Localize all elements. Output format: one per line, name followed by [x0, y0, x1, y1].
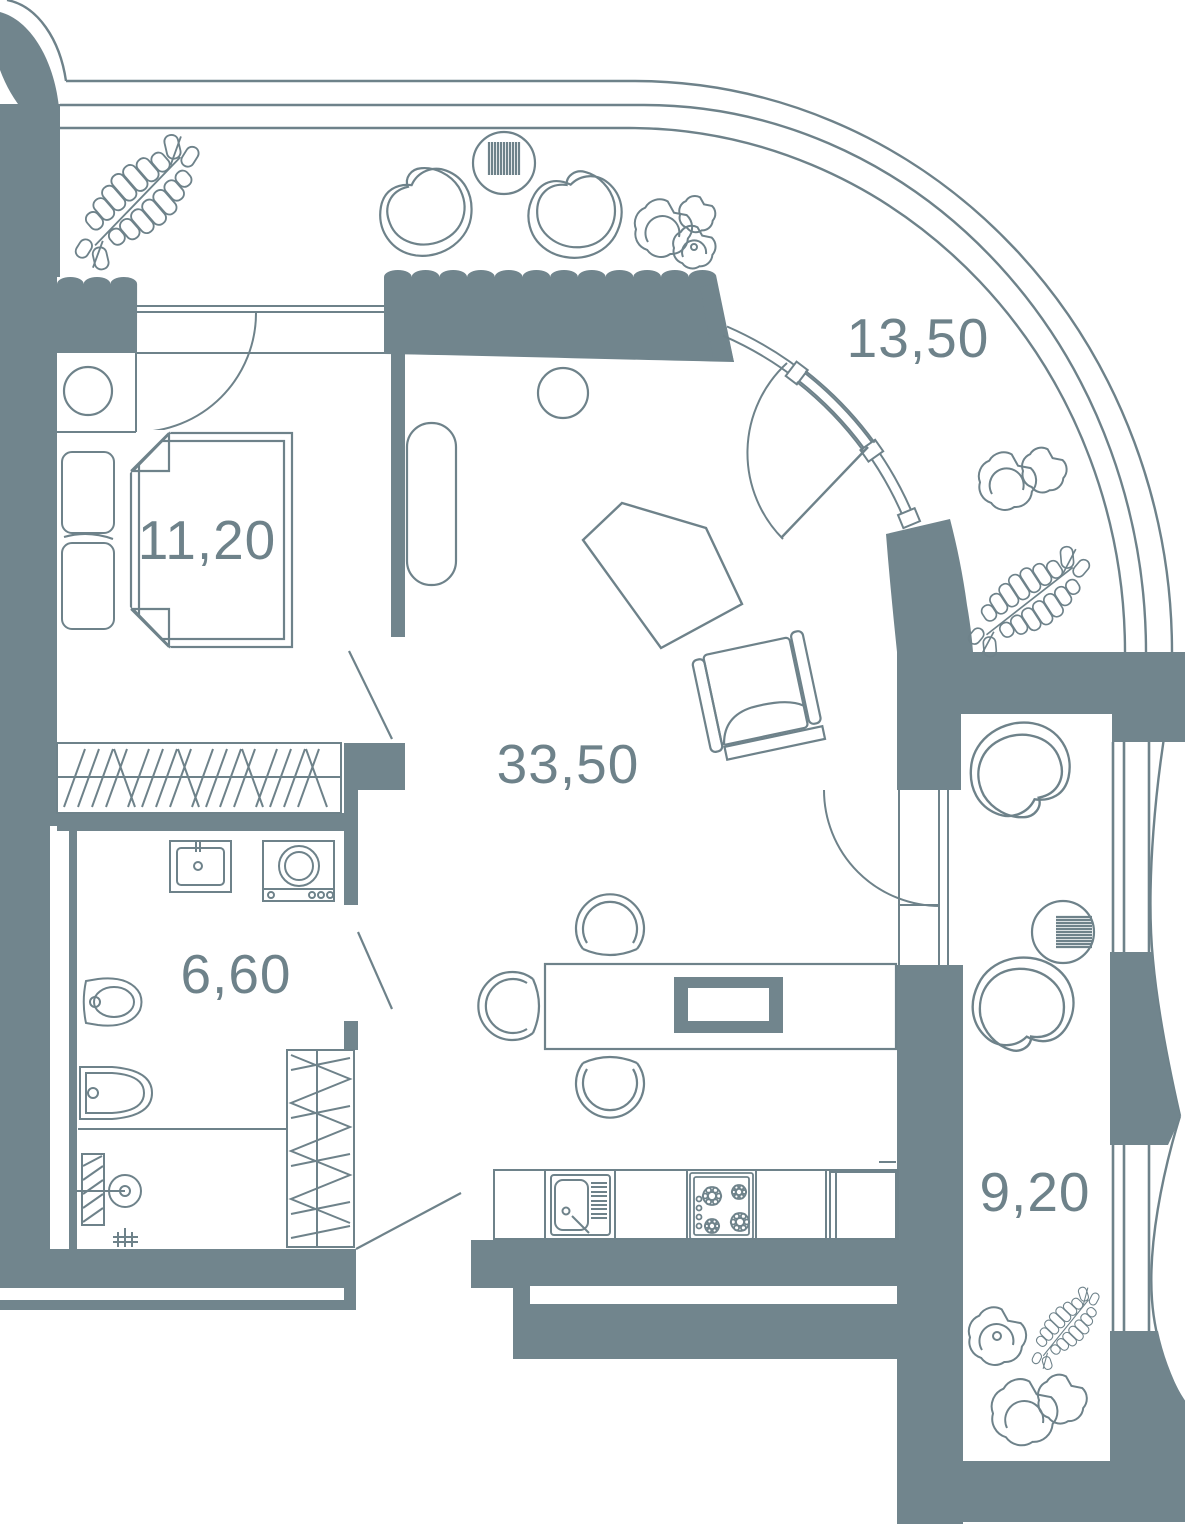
svg-text:33,50: 33,50 — [497, 733, 640, 795]
svg-text:9,20: 9,20 — [979, 1161, 1090, 1223]
svg-text:13,50: 13,50 — [847, 307, 990, 369]
svg-text:11,20: 11,20 — [138, 509, 277, 571]
svg-text:6,60: 6,60 — [180, 943, 291, 1005]
